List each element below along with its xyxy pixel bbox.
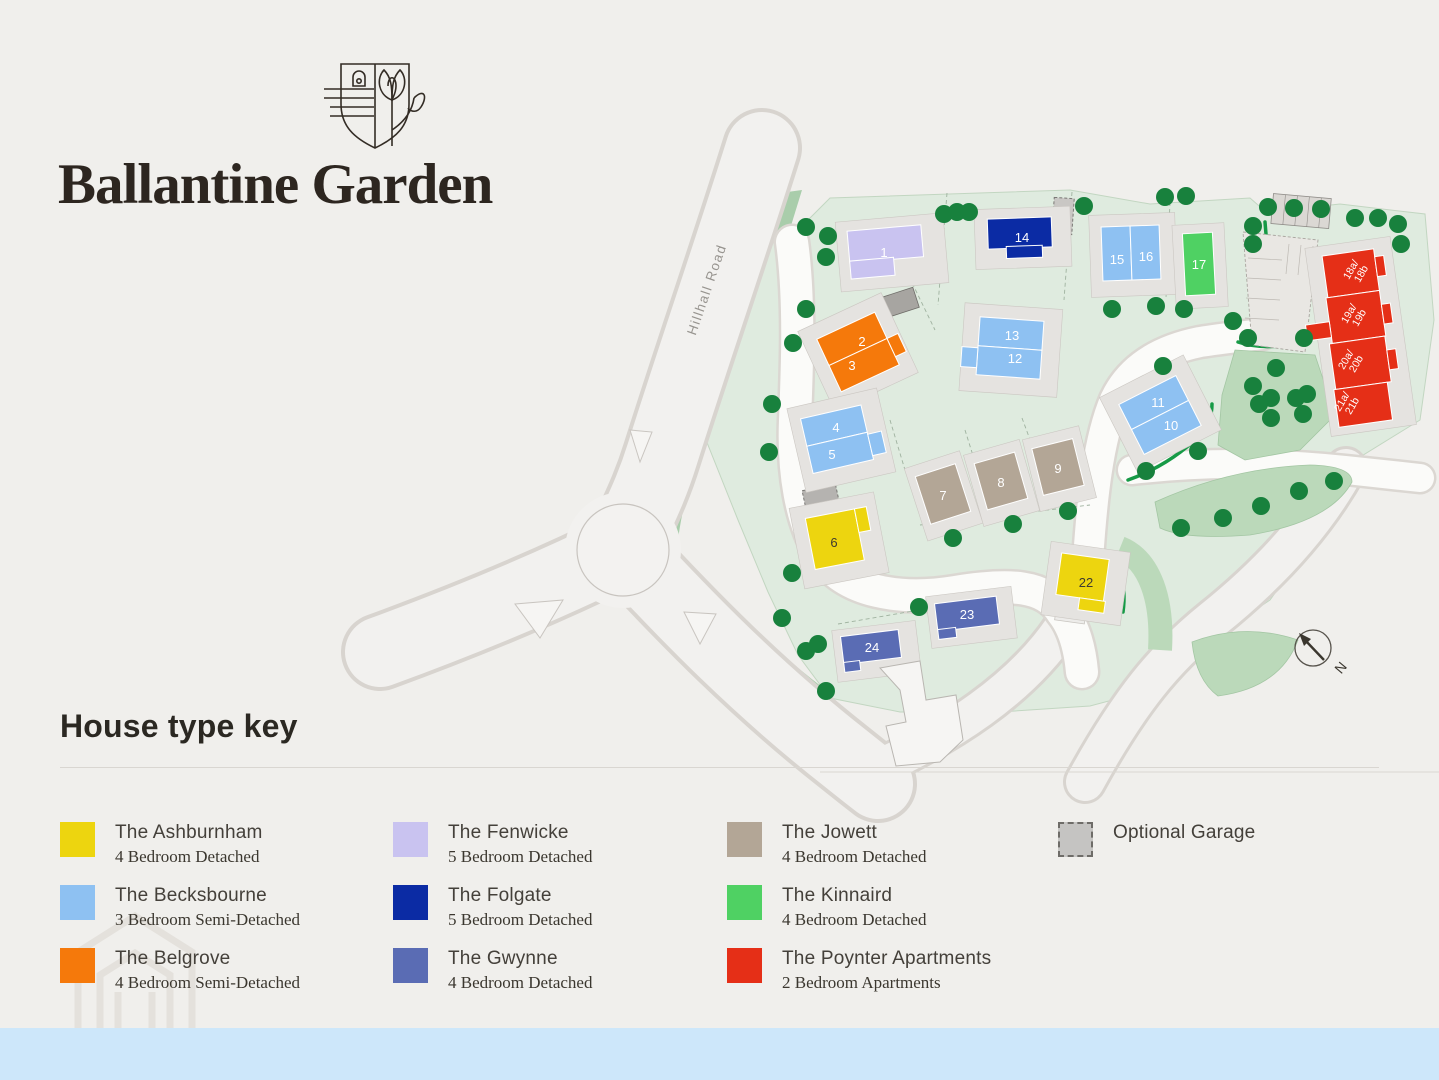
svg-text:16: 16 <box>1139 249 1153 264</box>
house-type-desc: 5 Bedroom Detached <box>448 910 592 930</box>
house-type-name: The Jowett <box>782 822 926 844</box>
color-swatch <box>727 822 762 857</box>
svg-text:N: N <box>1331 658 1350 676</box>
color-swatch <box>60 948 95 983</box>
house-type-desc: 3 Bedroom Semi-Detached <box>115 910 300 930</box>
svg-text:1: 1 <box>880 245 887 260</box>
color-swatch <box>393 948 428 983</box>
legend-item-ashburnham: The Ashburnham 4 Bedroom Detached <box>60 822 263 867</box>
house-type-name: The Fenwicke <box>448 822 592 844</box>
plot-22: 22 <box>1041 541 1131 625</box>
svg-text:7: 7 <box>939 488 946 503</box>
svg-text:3: 3 <box>848 358 855 373</box>
svg-text:9: 9 <box>1054 461 1061 476</box>
svg-text:11: 11 <box>1151 395 1165 410</box>
legend-item-folgate: The Folgate 5 Bedroom Detached <box>393 885 592 930</box>
svg-text:8: 8 <box>997 475 1004 490</box>
svg-text:5: 5 <box>828 447 835 462</box>
svg-text:2: 2 <box>858 334 865 349</box>
house-type-desc: 2 Bedroom Apartments <box>782 973 991 993</box>
legend-item-poynter: The Poynter Apartments 2 Bedroom Apartme… <box>727 948 991 993</box>
plot-17: 17 <box>1172 223 1228 310</box>
brand-title: Ballantine Garden <box>58 152 492 217</box>
house-type-desc: 4 Bedroom Detached <box>782 847 926 867</box>
logo-crest-icon <box>324 64 425 148</box>
legend-item-gwynne: The Gwynne 4 Bedroom Detached <box>393 948 592 993</box>
color-swatch <box>393 885 428 920</box>
color-swatch <box>727 948 762 983</box>
svg-text:4: 4 <box>832 420 839 435</box>
house-type-name: The Gwynne <box>448 948 592 970</box>
house-type-name: The Ashburnham <box>115 822 263 844</box>
house-type-desc: 4 Bedroom Detached <box>448 973 592 993</box>
house-type-name: The Poynter Apartments <box>782 948 991 970</box>
legend-item-belgrove: The Belgrove 4 Bedroom Semi-Detached <box>60 948 300 993</box>
legend-item-kinnaird: The Kinnaird 4 Bedroom Detached <box>727 885 926 930</box>
svg-text:22: 22 <box>1079 575 1093 590</box>
key-divider <box>60 767 1379 768</box>
house-type-name: The Folgate <box>448 885 592 907</box>
house-type-desc: 5 Bedroom Detached <box>448 847 592 867</box>
footer-strip <box>0 1028 1439 1080</box>
legend-item-jowett: The Jowett 4 Bedroom Detached <box>727 822 926 867</box>
house-type-desc: 4 Bedroom Semi-Detached <box>115 973 300 993</box>
color-swatch <box>1058 822 1093 857</box>
svg-text:23: 23 <box>960 607 974 622</box>
house-type-name: The Belgrove <box>115 948 300 970</box>
house-type-name: The Becksbourne <box>115 885 300 907</box>
color-swatch <box>393 822 428 857</box>
house-type-desc: 4 Bedroom Detached <box>782 910 926 930</box>
svg-text:6: 6 <box>830 535 837 550</box>
color-swatch <box>727 885 762 920</box>
svg-text:17: 17 <box>1192 257 1206 272</box>
house-type-name: The Kinnaird <box>782 885 926 907</box>
house-type-name: Optional Garage <box>1113 822 1255 844</box>
legend-item-fenwicke: The Fenwicke 5 Bedroom Detached <box>393 822 592 867</box>
svg-text:24: 24 <box>865 640 879 655</box>
plot-15-16: 15 16 <box>1089 212 1178 297</box>
house-type-desc: 4 Bedroom Detached <box>115 847 263 867</box>
svg-text:10: 10 <box>1164 418 1178 433</box>
site-plan-page: 1 14 15 16 17 <box>0 0 1439 1080</box>
key-heading: House type key <box>60 708 298 745</box>
svg-text:13: 13 <box>1005 328 1019 343</box>
svg-text:12: 12 <box>1008 351 1022 366</box>
plot-23: 23 <box>926 586 1018 648</box>
plot-1: 1 <box>835 213 949 292</box>
svg-text:14: 14 <box>1015 230 1029 245</box>
plot-14: 14 <box>974 206 1072 269</box>
plot-6: 6 <box>789 492 889 589</box>
color-swatch <box>60 822 95 857</box>
color-swatch <box>60 885 95 920</box>
plot-13-12: 13 12 <box>959 303 1063 398</box>
svg-text:15: 15 <box>1110 252 1124 267</box>
legend-item-becksbourne: The Becksbourne 3 Bedroom Semi-Detached <box>60 885 300 930</box>
legend-item-optional-garage: Optional Garage <box>1058 822 1255 857</box>
north-arrow: N <box>1295 630 1350 676</box>
